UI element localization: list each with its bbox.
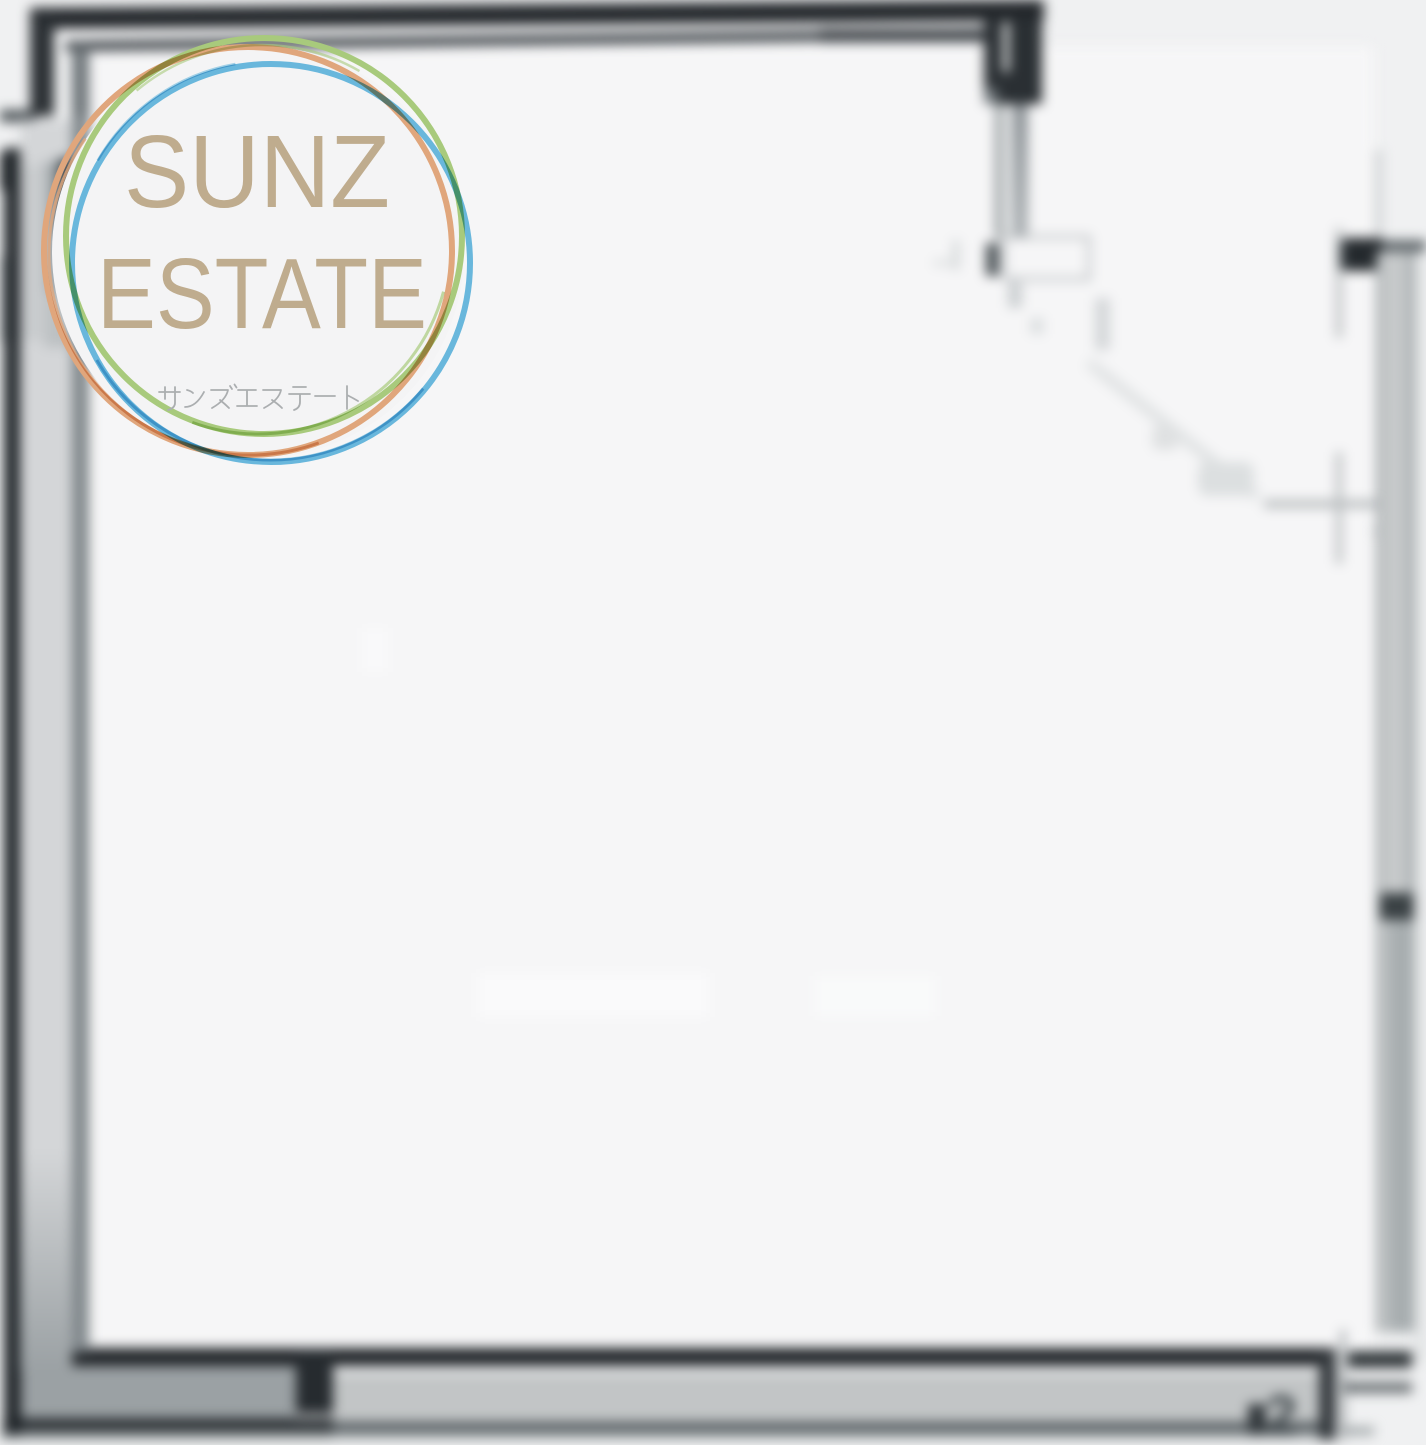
svg-text:ESTATE: ESTATE xyxy=(97,238,427,350)
svg-text:SUNZ: SUNZ xyxy=(124,114,390,229)
